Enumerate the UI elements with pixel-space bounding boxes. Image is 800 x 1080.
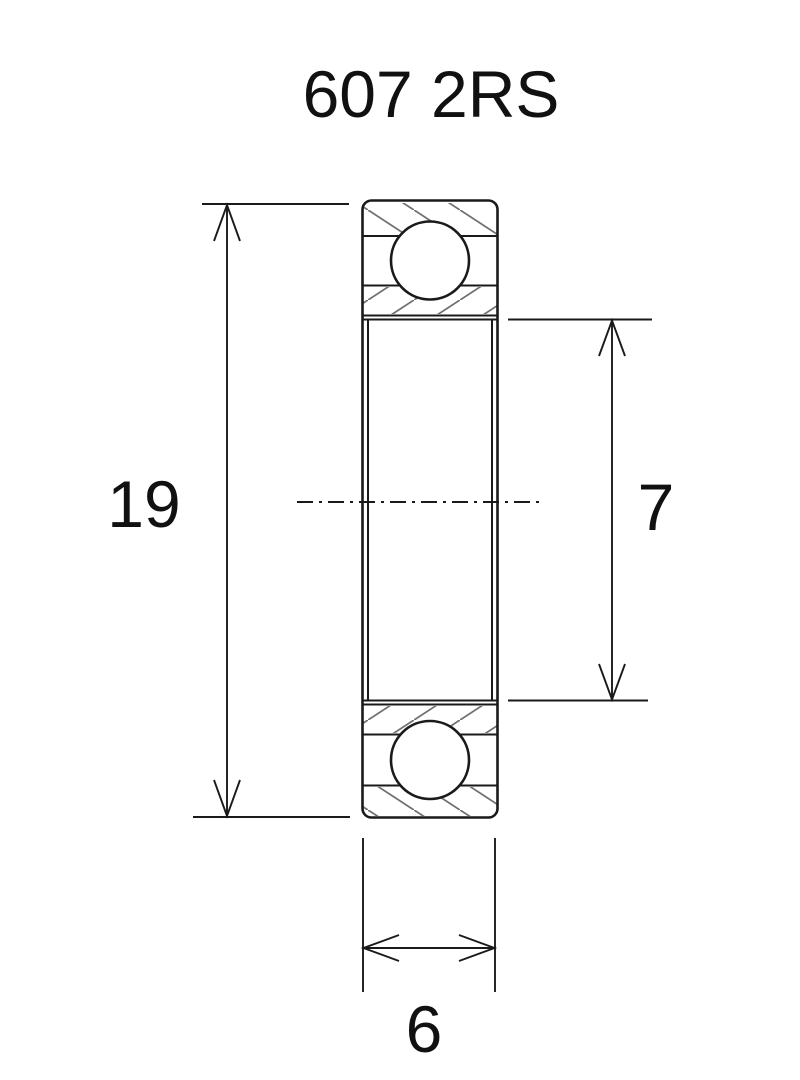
ball-bottom xyxy=(391,721,469,799)
drawing-title: 607 2RS xyxy=(303,57,560,131)
outer-diameter-label: 19 xyxy=(107,467,180,541)
ball-top xyxy=(391,222,469,300)
bore-diameter-label: 7 xyxy=(638,470,675,544)
width-label: 6 xyxy=(406,992,443,1066)
bearing-technical-drawing: 607 2RS 19 xyxy=(0,0,800,1080)
